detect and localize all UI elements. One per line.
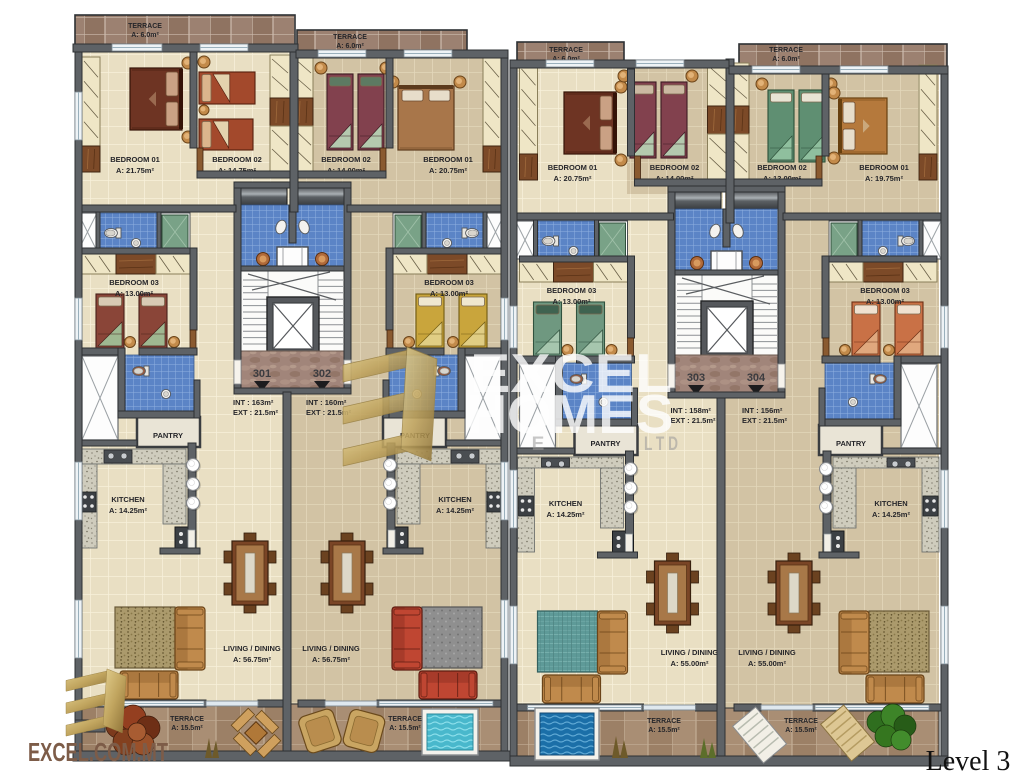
svg-text:TERRACE: TERRACE: [333, 34, 367, 41]
svg-text:BEDROOM 01: BEDROOM 01: [423, 155, 473, 164]
svg-text:Level 3: Level 3: [926, 746, 1011, 777]
svg-text:BEDROOM 02: BEDROOM 02: [212, 155, 262, 164]
svg-text:BEDROOM 03: BEDROOM 03: [424, 278, 474, 287]
svg-text:BEDROOM 03: BEDROOM 03: [860, 286, 910, 295]
svg-text:TERRACE: TERRACE: [170, 716, 204, 723]
svg-text:A: 20.75m²: A: 20.75m²: [554, 174, 592, 183]
svg-text:A: 56.75m²: A: 56.75m²: [233, 655, 271, 664]
svg-text:TERRACE: TERRACE: [388, 716, 422, 723]
svg-text:302: 302: [313, 368, 331, 380]
svg-text:TERRACE: TERRACE: [647, 718, 681, 725]
svg-text:A: 55.00m²: A: 55.00m²: [748, 659, 786, 668]
svg-text:BEDROOM 01: BEDROOM 01: [859, 163, 909, 172]
svg-text:A: 14.25m²: A: 14.25m²: [872, 510, 910, 519]
svg-text:LIVING / DINING: LIVING / DINING: [738, 648, 796, 657]
svg-text:BEDROOM 03: BEDROOM 03: [109, 278, 159, 287]
svg-text:LIVING / DINING: LIVING / DINING: [223, 644, 281, 653]
svg-text:PANTRY: PANTRY: [153, 431, 183, 440]
svg-text:BEDROOM 02: BEDROOM 02: [650, 163, 700, 172]
svg-text:A: 6.0m²: A: 6.0m²: [131, 32, 159, 39]
svg-text:KITCHEN: KITCHEN: [874, 499, 907, 508]
svg-text:KITCHEN: KITCHEN: [438, 495, 471, 504]
svg-text:A: 14.25m²: A: 14.25m²: [109, 506, 147, 515]
svg-text:BEDROOM 02: BEDROOM 02: [321, 155, 371, 164]
svg-text:A: 14.25m²: A: 14.25m²: [547, 510, 585, 519]
svg-text:INT : 163m²: INT : 163m²: [233, 398, 274, 407]
svg-text:EXT : 21.5m²: EXT : 21.5m²: [742, 416, 788, 425]
svg-text:TERRACE: TERRACE: [769, 47, 803, 54]
svg-text:BEDROOM 03: BEDROOM 03: [547, 286, 597, 295]
svg-text:HOMES: HOMES: [467, 383, 674, 445]
svg-text:EXCEL.COM.MT: EXCEL.COM.MT: [28, 737, 168, 767]
svg-text:A: 21.75m²: A: 21.75m²: [116, 166, 154, 175]
svg-text:304: 304: [747, 372, 766, 384]
svg-text:A: 15.5m²: A: 15.5m²: [648, 727, 680, 734]
svg-text:A: 6.0m²: A: 6.0m²: [772, 56, 800, 63]
svg-text:L T D: L T D: [644, 434, 678, 455]
svg-text:LIVING / DINING: LIVING / DINING: [661, 648, 719, 657]
svg-text:TERRACE: TERRACE: [784, 718, 818, 725]
svg-text:A: 55.00m²: A: 55.00m²: [671, 659, 709, 668]
svg-text:INT : 160m²: INT : 160m²: [306, 398, 347, 407]
svg-text:BEDROOM 01: BEDROOM 01: [548, 163, 598, 172]
svg-text:301: 301: [253, 368, 271, 380]
svg-text:A: 20.75m²: A: 20.75m²: [429, 166, 467, 175]
svg-text:E: E: [532, 434, 545, 455]
svg-text:A: 14.25m²: A: 14.25m²: [436, 506, 474, 515]
svg-text:INT : 158m²: INT : 158m²: [671, 406, 712, 415]
svg-text:BEDROOM 01: BEDROOM 01: [110, 155, 160, 164]
svg-text:A: 13.00m²: A: 13.00m²: [115, 289, 153, 298]
svg-text:303: 303: [687, 372, 705, 384]
svg-text:EXT : 21.5m²: EXT : 21.5m²: [671, 416, 717, 425]
svg-text:A: 6.0m²: A: 6.0m²: [336, 43, 364, 50]
svg-text:BEDROOM 02: BEDROOM 02: [757, 163, 807, 172]
svg-text:A: 56.75m²: A: 56.75m²: [312, 655, 350, 664]
svg-text:TERRACE: TERRACE: [549, 47, 583, 54]
svg-text:A: 13.00m²: A: 13.00m²: [866, 297, 904, 306]
svg-text:LIVING / DINING: LIVING / DINING: [302, 644, 360, 653]
svg-text:A: 13.00m²: A: 13.00m²: [430, 289, 468, 298]
svg-text:A: 15.5m²: A: 15.5m²: [389, 725, 421, 732]
svg-text:A: 15.5m²: A: 15.5m²: [785, 727, 817, 734]
svg-text:KITCHEN: KITCHEN: [111, 495, 144, 504]
svg-text:INT : 156m²: INT : 156m²: [742, 406, 783, 415]
svg-text:PANTRY: PANTRY: [836, 439, 866, 448]
svg-text:A: 13.00m²: A: 13.00m²: [553, 297, 591, 306]
svg-text:A: 19.75m²: A: 19.75m²: [865, 174, 903, 183]
svg-text:KITCHEN: KITCHEN: [549, 499, 582, 508]
svg-text:TERRACE: TERRACE: [128, 23, 162, 30]
svg-text:EXT : 21.5m²: EXT : 21.5m²: [233, 408, 279, 417]
svg-text:A: 15.5m²: A: 15.5m²: [171, 725, 203, 732]
